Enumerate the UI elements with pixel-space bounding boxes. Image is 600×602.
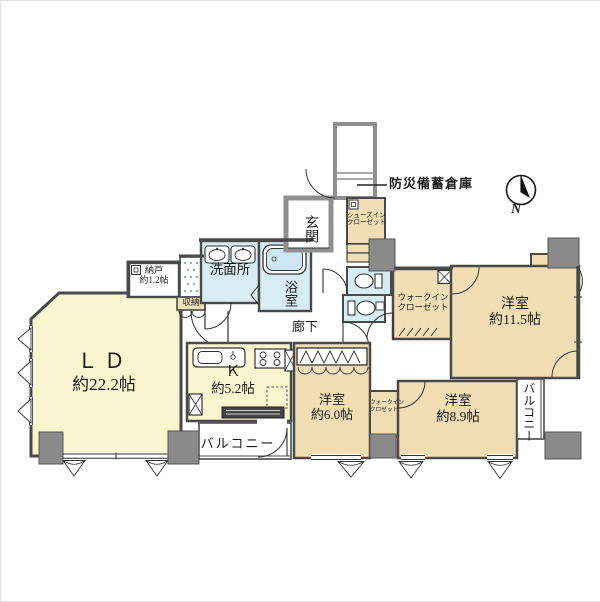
pipe-space	[438, 271, 451, 284]
room-label-bedroom-large: 洋室 約11.5帖	[451, 297, 579, 329]
counter	[222, 407, 284, 418]
room-size: 約8.9帖	[399, 409, 517, 425]
label-line: クロゼット	[370, 407, 399, 414]
laundry-space	[180, 257, 203, 297]
room-name: 納戸	[129, 265, 179, 275]
meter-box-icon	[349, 200, 358, 209]
room-label-kitchen: Ｋ 約5.2帖	[190, 364, 276, 397]
toilet-icon	[355, 274, 373, 288]
room-label-ld: ＬＤ 約22.2帖	[41, 349, 167, 395]
room-label-storeroom: 納戸 約1.2帖	[129, 265, 179, 286]
toilet-icon	[357, 301, 375, 315]
room-label-walkin-closet-small: ウォークイン クロゼット	[370, 400, 399, 413]
disaster-storage-room	[335, 124, 387, 198]
shelf	[347, 253, 369, 262]
room-label-balcony-south: バルコニー	[186, 437, 290, 452]
room-label-washroom: 洗面所	[201, 262, 259, 278]
room-label-bathroom: 浴室	[282, 273, 298, 313]
room-size: 約11.5帖	[451, 313, 579, 329]
sink-icon	[231, 246, 255, 263]
room-label-shoes-closet: シューズイン クローゼット	[347, 212, 385, 227]
floor-plan: 防災備蓄倉庫 N ＬＤ 約22.2帖 Ｋ 約5.2帖 洋室 約6.0帖 洋室 約…	[0, 0, 600, 602]
sink-icon	[205, 246, 229, 263]
room-label-entrance: 玄関	[302, 207, 318, 251]
room-size: 約6.0帖	[294, 408, 370, 423]
window	[311, 454, 364, 477]
room-washroom	[201, 241, 259, 329]
shelf	[347, 244, 369, 253]
door-arc	[323, 269, 347, 293]
room-name: 洋室	[294, 393, 370, 408]
window	[18, 326, 35, 425]
room-name: 洋室	[451, 297, 579, 313]
label-line: ウォークイン	[370, 400, 399, 407]
disaster-storage-label: 防災備蓄倉庫	[389, 177, 473, 192]
room-toilet-2	[343, 295, 385, 348]
room-name: 洋室	[399, 393, 517, 409]
folding-door	[179, 311, 205, 318]
compass-icon	[507, 176, 536, 205]
label-line: クローゼット	[347, 219, 385, 226]
room-name: Ｋ	[190, 364, 276, 381]
pipe-space	[189, 394, 202, 415]
room-label-bedroom-small: 洋室 約6.0帖	[294, 393, 370, 423]
door-opening	[257, 419, 287, 426]
room-label-balcony-east: バルコニー	[521, 380, 535, 444]
room-size: 約5.2帖	[190, 381, 276, 397]
room-label-hallway: 廊下	[285, 320, 325, 335]
meter-box-icon	[376, 302, 384, 310]
room-walkin-closet-small	[370, 391, 398, 437]
room-size: 約1.2帖	[129, 275, 179, 285]
door-arc	[205, 303, 231, 329]
room-label-storage: 収納	[177, 298, 205, 308]
room-label-walkin-closet-main: ウォークイン クローゼット	[393, 293, 453, 313]
window	[63, 453, 168, 477]
room-name: ＬＤ	[41, 349, 167, 373]
room-size: 約22.2帖	[41, 375, 167, 395]
entry-door-arc	[306, 169, 335, 198]
room-label-bedroom-medium: 洋室 約8.9帖	[399, 393, 517, 424]
compass-north-label: N	[511, 202, 521, 218]
label-line: クローゼット	[393, 303, 453, 313]
